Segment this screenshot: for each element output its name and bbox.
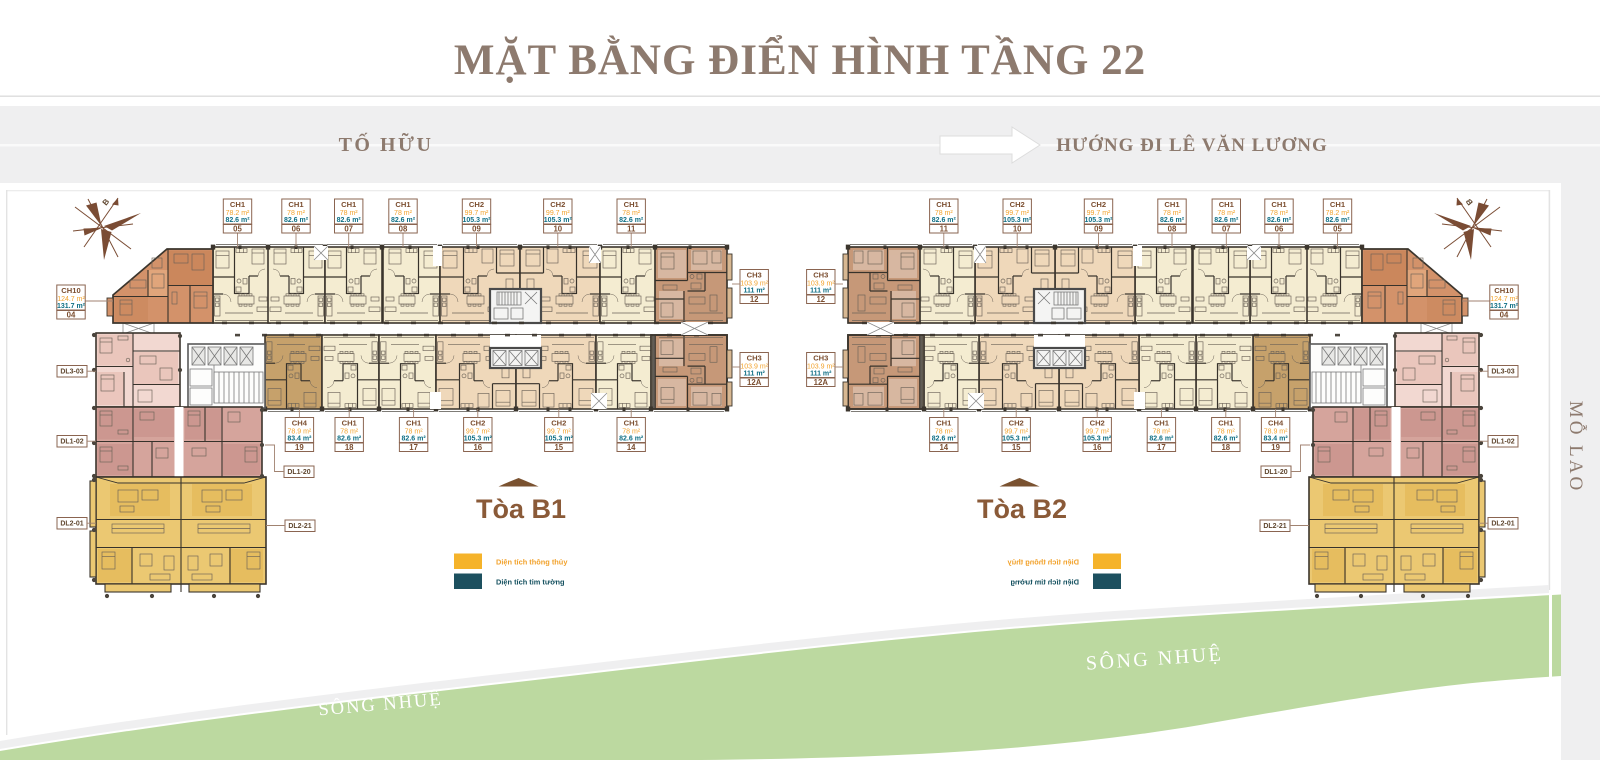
svg-text:CH1: CH1 [342, 419, 358, 428]
svg-text:105.3 m²: 105.3 m² [1002, 436, 1031, 443]
svg-text:82.6 m²: 82.6 m² [337, 217, 362, 224]
svg-text:131.7 m²: 131.7 m² [1490, 303, 1519, 310]
svg-text:82.6 m²: 82.6 m² [1149, 436, 1174, 443]
svg-text:82.6 m²: 82.6 m² [932, 217, 957, 224]
svg-text:11: 11 [940, 225, 949, 234]
svg-text:15: 15 [554, 443, 563, 452]
svg-text:103.9 m²: 103.9 m² [807, 281, 835, 288]
svg-text:19: 19 [1271, 443, 1280, 452]
svg-text:CH2: CH2 [1010, 200, 1025, 209]
svg-text:105.3 m²: 105.3 m² [1084, 217, 1113, 224]
svg-text:08: 08 [1168, 225, 1177, 234]
svg-text:12A: 12A [747, 378, 762, 387]
svg-text:82.6 m²: 82.6 m² [337, 436, 362, 443]
svg-text:78 m²: 78 m² [1217, 429, 1236, 436]
svg-text:105.3 m²: 105.3 m² [464, 436, 493, 443]
svg-text:99.7 m²: 99.7 m² [547, 429, 571, 436]
svg-text:82.6 m²: 82.6 m² [402, 436, 427, 443]
svg-text:CH1: CH1 [230, 200, 246, 209]
svg-text:CH3: CH3 [747, 271, 762, 280]
svg-text:105.3 m²: 105.3 m² [1083, 436, 1112, 443]
svg-text:08: 08 [399, 225, 408, 234]
svg-text:99.7 m²: 99.7 m² [1085, 429, 1109, 436]
svg-text:09: 09 [472, 225, 481, 234]
svg-text:11: 11 [627, 225, 636, 234]
svg-text:MẶT BẰNG ĐIỂN HÌNH TẦNG 22: MẶT BẰNG ĐIỂN HÌNH TẦNG 22 [454, 35, 1146, 84]
svg-text:103.9 m²: 103.9 m² [740, 281, 768, 288]
svg-text:78 m²: 78 m² [1270, 210, 1289, 217]
svg-text:04: 04 [67, 311, 76, 320]
svg-text:131.7 m²: 131.7 m² [57, 303, 86, 310]
svg-text:06: 06 [1275, 225, 1284, 234]
svg-text:CH1: CH1 [341, 200, 357, 209]
svg-text:CH1: CH1 [395, 200, 411, 209]
svg-text:Tòa B2: Tòa B2 [977, 494, 1067, 524]
svg-text:14: 14 [627, 443, 636, 452]
svg-text:CH1: CH1 [1154, 419, 1170, 428]
svg-text:18: 18 [1221, 443, 1230, 452]
svg-text:HƯỚNG ĐI LÊ VĂN LƯƠNG: HƯỚNG ĐI LÊ VĂN LƯƠNG [1056, 134, 1328, 156]
svg-text:CH1: CH1 [1219, 200, 1235, 209]
svg-text:CH1: CH1 [936, 200, 952, 209]
svg-text:DL2-01: DL2-01 [60, 521, 83, 528]
svg-text:CH1: CH1 [1330, 200, 1346, 209]
svg-text:DL2-01: DL2-01 [1491, 521, 1514, 528]
svg-text:TỐ HỮU: TỐ HỮU [339, 132, 434, 156]
svg-text:09: 09 [1094, 225, 1103, 234]
svg-text:CH4: CH4 [1268, 419, 1284, 428]
svg-text:06: 06 [292, 225, 301, 234]
svg-text:105.3 m²: 105.3 m² [462, 217, 491, 224]
svg-text:10: 10 [553, 225, 562, 234]
svg-text:99.7 m²: 99.7 m² [1005, 210, 1029, 217]
svg-text:111 m²: 111 m² [810, 288, 832, 295]
svg-text:78.9 m²: 78.9 m² [288, 429, 312, 436]
svg-text:78 m²: 78 m² [405, 429, 424, 436]
svg-text:DL1-20: DL1-20 [287, 469, 310, 476]
svg-text:CH1: CH1 [1164, 200, 1180, 209]
svg-text:16: 16 [473, 443, 482, 452]
svg-text:99.7 m²: 99.7 m² [465, 210, 489, 217]
svg-text:82.6 m²: 82.6 m² [1214, 217, 1239, 224]
svg-text:124.7 m²: 124.7 m² [1490, 296, 1518, 303]
svg-text:CH10: CH10 [61, 286, 80, 295]
svg-text:CH1: CH1 [624, 419, 640, 428]
svg-text:82.6 m²: 82.6 m² [1267, 217, 1292, 224]
svg-text:CH1: CH1 [1218, 419, 1234, 428]
svg-text:CH2: CH2 [1090, 419, 1105, 428]
svg-text:DL3-03: DL3-03 [1491, 369, 1514, 376]
svg-text:CH1: CH1 [406, 419, 422, 428]
svg-text:83.4 m²: 83.4 m² [287, 436, 312, 443]
svg-text:78 m²: 78 m² [1217, 210, 1236, 217]
svg-text:82.6 m²: 82.6 m² [391, 217, 416, 224]
svg-text:105.3 m²: 105.3 m² [544, 217, 573, 224]
svg-text:82.6 m²: 82.6 m² [619, 217, 644, 224]
svg-text:CH2: CH2 [551, 419, 566, 428]
svg-text:12A: 12A [814, 378, 829, 387]
svg-text:111 m²: 111 m² [810, 371, 832, 378]
svg-text:99.7 m²: 99.7 m² [546, 210, 570, 217]
svg-text:CH1: CH1 [288, 200, 304, 209]
svg-text:DL1-02: DL1-02 [60, 439, 83, 446]
svg-text:105.3 m²: 105.3 m² [1003, 217, 1032, 224]
svg-text:CH10: CH10 [1494, 286, 1513, 295]
svg-text:CH3: CH3 [813, 354, 828, 363]
svg-text:MỖ LAO: MỖ LAO [1565, 401, 1587, 493]
svg-text:DL2-21: DL2-21 [288, 523, 311, 530]
svg-text:04: 04 [1500, 311, 1509, 320]
svg-text:78 m²: 78 m² [394, 210, 413, 217]
svg-text:82.6 m²: 82.6 m² [284, 217, 309, 224]
svg-text:12: 12 [816, 295, 825, 304]
svg-text:CH2: CH2 [1091, 200, 1106, 209]
svg-text:78 m²: 78 m² [935, 429, 954, 436]
svg-text:111 m²: 111 m² [743, 288, 765, 295]
svg-text:CH4: CH4 [292, 419, 308, 428]
svg-text:05: 05 [1333, 225, 1342, 234]
svg-text:105.3 m²: 105.3 m² [545, 436, 574, 443]
svg-text:82.6 m²: 82.6 m² [225, 217, 250, 224]
svg-text:78 m²: 78 m² [1163, 210, 1182, 217]
svg-text:18: 18 [345, 443, 354, 452]
svg-text:99.7 m²: 99.7 m² [1004, 429, 1028, 436]
svg-text:05: 05 [233, 225, 242, 234]
svg-text:78 m²: 78 m² [622, 429, 641, 436]
svg-text:78.2 m²: 78.2 m² [1326, 210, 1350, 217]
svg-text:CH2: CH2 [1009, 419, 1024, 428]
svg-text:DL2-21: DL2-21 [1263, 523, 1286, 530]
svg-text:DL1-02: DL1-02 [1491, 439, 1514, 446]
svg-text:CH1: CH1 [624, 200, 640, 209]
svg-text:82.6 m²: 82.6 m² [619, 436, 644, 443]
svg-text:78 m²: 78 m² [1152, 429, 1171, 436]
svg-text:99.7 m²: 99.7 m² [1087, 210, 1111, 217]
svg-text:CH1: CH1 [936, 419, 952, 428]
svg-text:78.9 m²: 78.9 m² [1264, 429, 1288, 436]
svg-text:CH2: CH2 [470, 419, 485, 428]
svg-text:111 m²: 111 m² [743, 371, 765, 378]
svg-text:DL3-03: DL3-03 [60, 369, 83, 376]
svg-text:CH1: CH1 [1271, 200, 1287, 209]
svg-text:82.6 m²: 82.6 m² [1214, 436, 1239, 443]
svg-text:DL1-20: DL1-20 [1264, 469, 1287, 476]
svg-text:78 m²: 78 m² [340, 429, 359, 436]
svg-text:15: 15 [1012, 443, 1021, 452]
svg-text:82.6 m²: 82.6 m² [932, 436, 957, 443]
svg-text:103.9 m²: 103.9 m² [807, 364, 835, 371]
svg-text:78 m²: 78 m² [287, 210, 306, 217]
svg-text:82.6 m²: 82.6 m² [1160, 217, 1185, 224]
svg-text:14: 14 [939, 443, 948, 452]
svg-text:10: 10 [1013, 225, 1022, 234]
svg-text:07: 07 [1222, 225, 1231, 234]
svg-text:17: 17 [1157, 443, 1166, 452]
svg-text:19: 19 [295, 443, 304, 452]
svg-text:78 m²: 78 m² [935, 210, 954, 217]
svg-text:CH2: CH2 [469, 200, 484, 209]
svg-text:12: 12 [750, 295, 759, 304]
svg-text:124.7 m²: 124.7 m² [57, 296, 85, 303]
svg-text:Tòa B1: Tòa B1 [476, 494, 566, 524]
svg-text:CH3: CH3 [747, 354, 762, 363]
svg-text:99.7 m²: 99.7 m² [466, 429, 490, 436]
svg-text:78.2 m²: 78.2 m² [226, 210, 250, 217]
svg-text:07: 07 [344, 225, 353, 234]
svg-text:16: 16 [1093, 443, 1102, 452]
svg-text:78 m²: 78 m² [340, 210, 359, 217]
svg-text:CH2: CH2 [550, 200, 565, 209]
svg-text:17: 17 [409, 443, 418, 452]
svg-text:103.9 m²: 103.9 m² [740, 364, 768, 371]
svg-text:CH3: CH3 [813, 271, 828, 280]
svg-text:83.4 m²: 83.4 m² [1264, 436, 1289, 443]
svg-text:78 m²: 78 m² [622, 210, 641, 217]
svg-text:82.6 m²: 82.6 m² [1325, 217, 1350, 224]
